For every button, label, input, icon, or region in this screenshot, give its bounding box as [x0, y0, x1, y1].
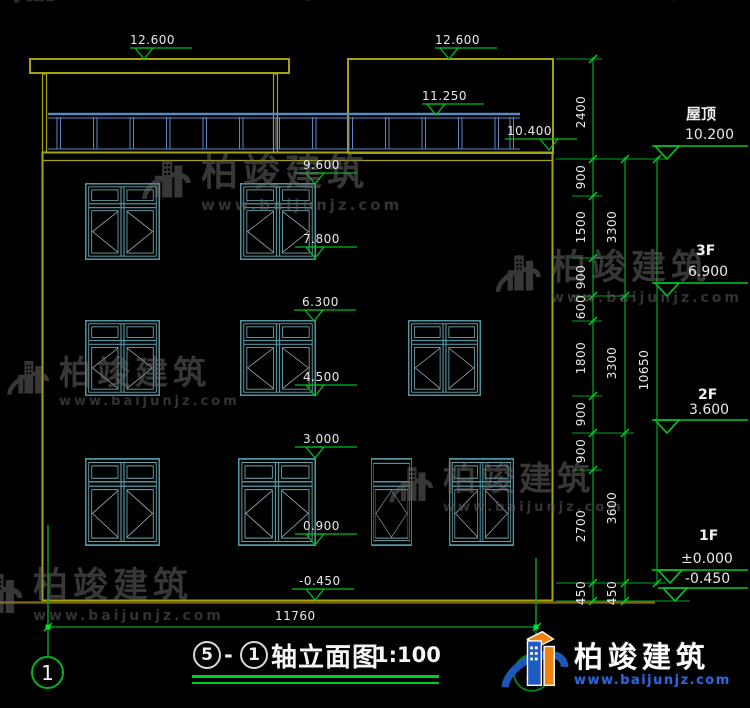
dim-inner-900c: 900 [575, 402, 587, 426]
dim-inner-2700: 2700 [575, 510, 587, 543]
floor-value-ground: -0.450 [685, 571, 730, 587]
dim-inner-2400: 2400 [575, 96, 587, 129]
elevation-label-canopy-left: 12.600 [130, 34, 175, 47]
dim-inner-900b: 900 [575, 265, 587, 289]
dim-inner-1500: 1500 [575, 211, 587, 244]
elevation-label-canopy-right: 12.600 [435, 34, 480, 47]
elevation-label-parapet: 10.400 [507, 125, 552, 138]
dim-inner-1800: 1800 [575, 342, 587, 375]
watermark-logo-icon [0, 568, 26, 628]
watermark-brand: 柏竣建筑 [33, 568, 224, 605]
title-axis-start-bubble: 5 [193, 641, 221, 669]
title-separator: - [224, 643, 233, 667]
watermark: 柏竣建筑 www.baijunjz.com [384, 462, 624, 515]
dim-inner-900a: 900 [575, 165, 587, 189]
floor-label-2f: 2F [698, 387, 717, 403]
elevation-label-f2-window-bottom: 4.500 [303, 371, 340, 384]
dim-inner-600: 600 [575, 295, 587, 319]
elevation-label-ground: -0.450 [299, 575, 341, 588]
watermark-logo-icon [384, 462, 436, 514]
watermark: 柏竣建筑 www.baijunjz.com [2, 356, 240, 409]
elevation-label-f3-window-bottom: 7.800 [303, 233, 340, 246]
dim-mid-3600: 3600 [606, 492, 618, 525]
floor-value-3f: 6.900 [688, 264, 728, 280]
brand-logo: 柏竣建筑 www.baijunjz.com [496, 628, 731, 702]
floor-value-1f: ±0.000 [681, 551, 733, 567]
floor-value-roof: 10.200 [685, 127, 734, 143]
title-axis-end: 1 [248, 645, 260, 665]
elevation-label-f1-window-top: 3.000 [303, 433, 340, 446]
watermark-brand: 柏竣建筑 [201, 154, 402, 193]
watermark-url: www.baijunjz.com [59, 394, 240, 409]
floor-label-3f: 3F [696, 243, 715, 259]
watermark: 柏竣建筑 www.baijunjz.com [0, 568, 224, 628]
floor-label-roof: 屋顶 [686, 103, 716, 124]
floor-label-1f: 1F [699, 528, 718, 544]
title-underline-thick [192, 675, 439, 678]
floor-value-2f: 3.600 [689, 402, 729, 418]
watermark-brand: 柏竣建筑 [443, 462, 624, 497]
axis-bubble-1: 1 [31, 656, 64, 689]
watermark-logo-icon [490, 250, 544, 304]
dim-mid-450: 450 [606, 581, 618, 605]
overall-width-dim: 11760 [275, 610, 316, 623]
brand-logo-icon [496, 628, 570, 702]
drawing-title: 轴立面图 [271, 637, 379, 674]
watermark: 柏竣建筑 www.baijunjz.com [136, 154, 402, 214]
dim-inner-450: 450 [575, 581, 587, 605]
watermark-logo-icon [2, 356, 52, 406]
watermark-url: www.baijunjz.com [201, 196, 402, 214]
title-underline-thin [192, 682, 439, 684]
elevation-label-f1-window-bottom: 0.900 [303, 520, 340, 533]
watermark-url: www.baijunjz.com [33, 608, 224, 624]
drawing-scale: 1:100 [374, 643, 441, 667]
elevation-label-f3-window-top: 9.600 [303, 159, 340, 172]
watermark-fragment [17, 0, 713, 3]
elevation-label-f2-window-top: 6.300 [302, 296, 339, 309]
roof-railing [48, 114, 520, 149]
dim-mid-3300b: 3300 [606, 347, 618, 380]
axis-bubble-1-number: 1 [41, 661, 54, 685]
watermark-logo-icon [136, 154, 194, 212]
dim-mid-3300a: 3300 [606, 211, 618, 244]
watermark-brand: 柏竣建筑 [59, 356, 240, 391]
brand-name: 柏竣建筑 [574, 642, 731, 674]
title-axis-end-bubble: 1 [240, 641, 268, 669]
brand-url: www.baijunjz.com [574, 673, 731, 688]
title-axis-start: 5 [201, 645, 213, 665]
watermark-url: www.baijunjz.com [443, 500, 624, 515]
dim-outer-10650: 10650 [638, 350, 650, 391]
elevation-drawing: 柏竣建筑 www.baijunjz.com 柏竣建筑 www.baijunjz.… [0, 0, 750, 708]
dim-inner-900d: 900 [575, 439, 587, 463]
elevation-label-railing: 11.250 [422, 90, 467, 103]
